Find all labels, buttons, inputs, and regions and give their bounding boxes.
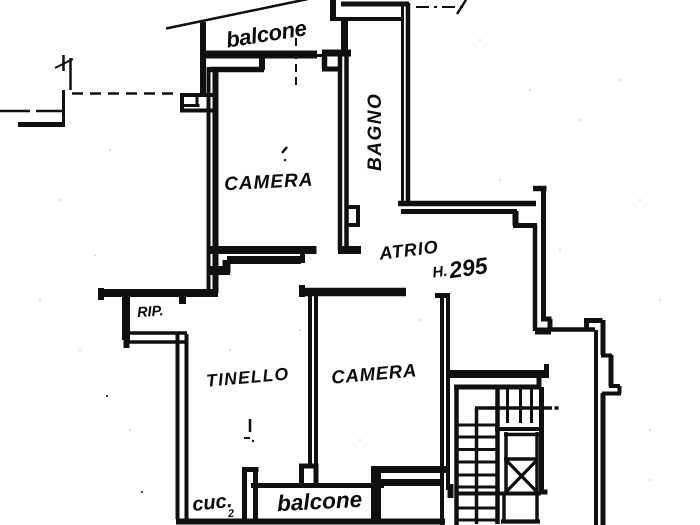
svg-text:2: 2 [226,508,234,521]
svg-text:H.: H. [431,263,448,282]
svg-text:295: 295 [447,252,491,283]
svg-text:CAMERA: CAMERA [330,359,418,387]
svg-text:BAGNO: BAGNO [365,93,386,171]
svg-text:balcone: balcone [224,15,308,52]
svg-text:TINELLO: TINELLO [205,364,290,391]
svg-text:CAMERA: CAMERA [224,170,314,196]
svg-text:balcone: balcone [276,487,362,516]
svg-text:RIP.: RIP. [137,303,164,321]
svg-text:ATRIO: ATRIO [377,237,440,264]
